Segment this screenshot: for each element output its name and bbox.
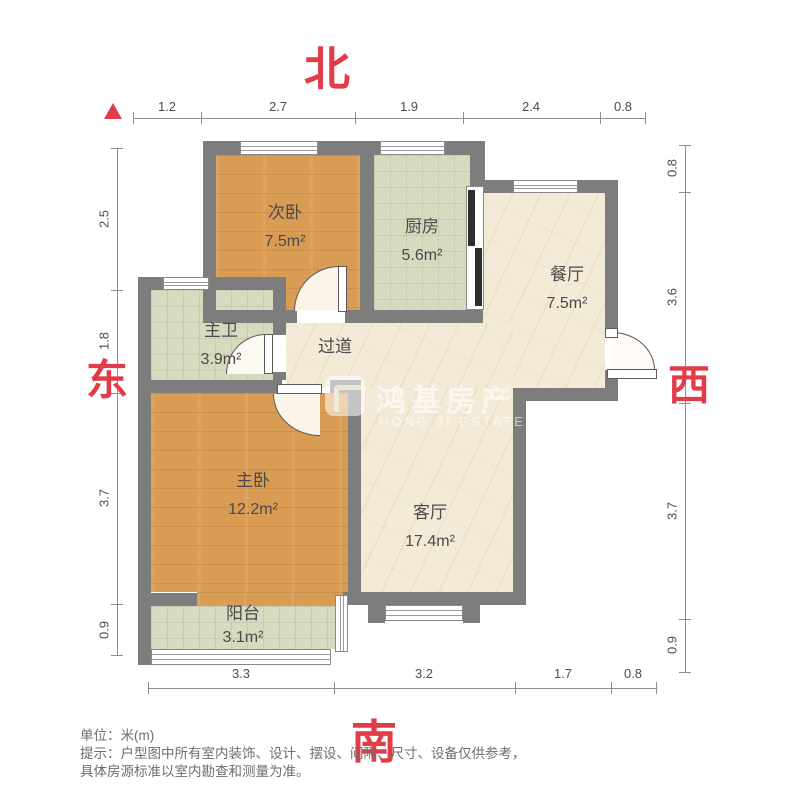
room-label-secondary-bedroom: 次卧 7.5m² — [265, 198, 306, 256]
dim-label-left: 2.5 — [97, 210, 112, 228]
dim-label-top: 1.2 — [158, 99, 176, 114]
room-area: 3.1m² — [223, 626, 264, 650]
room-label-master-bathroom: 主卫 3.9m² — [201, 316, 242, 374]
tick — [111, 148, 123, 149]
wall — [138, 380, 282, 393]
dim-label-left: 0.9 — [97, 621, 112, 639]
dining-room-window — [513, 180, 578, 193]
watermark-en: HONG JI ESTATE — [379, 414, 526, 429]
wall — [463, 592, 480, 623]
wall — [605, 180, 618, 333]
room-name: 餐厅 — [547, 260, 588, 289]
north-arrow-icon — [104, 103, 122, 119]
wall — [513, 388, 618, 401]
dim-label-top: 1.9 — [400, 99, 418, 114]
room-name: 客厅 — [405, 498, 455, 527]
tick — [355, 112, 356, 124]
dim-label-right: 0.9 — [665, 636, 680, 654]
tick — [600, 112, 601, 124]
compass-north: 北 — [304, 33, 350, 99]
footer-notes: 单位：米(m) 提示：户型图中所有室内装饰、设计、摆设、间隔、尺寸、设备仅供参考… — [80, 727, 526, 781]
dimension-line-bottom — [148, 688, 656, 689]
dim-label-bottom: 3.2 — [415, 666, 433, 681]
kitchen-window — [380, 141, 445, 155]
room-label-hallway: 过道 — [318, 332, 352, 361]
tick — [201, 112, 202, 124]
tick — [645, 112, 646, 124]
room-area: 5.6m² — [402, 241, 443, 270]
wall — [368, 592, 385, 623]
dim-label-right: 0.8 — [665, 159, 680, 177]
secondary-bedroom-window — [240, 141, 318, 155]
dim-label-bottom: 3.3 — [232, 666, 250, 681]
dim-label-top: 2.4 — [522, 99, 540, 114]
room-area: 12.2m² — [228, 495, 278, 524]
kitchen-sliding-door-panel — [468, 190, 475, 246]
tick — [334, 682, 335, 694]
secondary-bedroom-door-leaf — [338, 266, 347, 312]
room-area: 3.9m² — [201, 345, 242, 374]
entry-door-hinge — [605, 328, 618, 338]
tick — [656, 682, 657, 694]
bathroom-door-leaf — [264, 334, 273, 374]
disclaimer-line-2: 具体房源标准以室内勘查和测量为准。 — [80, 763, 526, 781]
balcony-bottom-window — [151, 649, 331, 665]
room-name: 厨房 — [402, 212, 443, 241]
tick — [111, 655, 123, 656]
tick — [111, 604, 123, 605]
room-name: 阳台 — [223, 602, 264, 626]
tick — [133, 112, 134, 124]
room-label-living-room: 客厅 17.4m² — [405, 498, 455, 556]
room-area: 7.5m² — [547, 289, 588, 318]
room-name: 过道 — [318, 332, 352, 361]
room-name: 主卫 — [201, 316, 242, 345]
bathroom-window — [163, 277, 209, 290]
tick — [148, 682, 149, 694]
room-label-kitchen: 厨房 5.6m² — [402, 212, 443, 270]
kitchen-sliding-door-panel — [475, 248, 482, 306]
master-bedroom-floor-ext — [197, 592, 348, 606]
compass-east: 东 — [86, 347, 128, 408]
floor-plan-canvas: 鸿基房产 HONG JI ESTATE 次卧 7.5m² 厨房 5.6m² 餐厅… — [0, 0, 800, 800]
wall — [273, 372, 286, 380]
tick — [611, 682, 612, 694]
dim-label-top: 0.8 — [614, 99, 632, 114]
wall — [360, 155, 374, 310]
tick — [679, 192, 691, 193]
wall — [138, 593, 197, 606]
entry-door-arc — [612, 332, 655, 370]
balcony-side-window — [335, 595, 348, 652]
entry-door-leaf — [607, 369, 657, 379]
dim-label-right: 3.6 — [665, 288, 680, 306]
tick — [463, 112, 464, 124]
compass-west: 西 — [668, 352, 710, 413]
room-area: 7.5m² — [265, 227, 306, 256]
tick — [679, 145, 691, 146]
tick — [111, 290, 123, 291]
dim-label-bottom: 1.7 — [554, 666, 572, 681]
tick — [515, 682, 516, 694]
unit-note: 单位：米(m) — [80, 727, 526, 745]
dimension-line-top — [133, 118, 646, 119]
dim-label-bottom: 0.8 — [624, 666, 642, 681]
room-label-balcony: 阳台 3.1m² — [223, 602, 264, 650]
room-label-master-bedroom: 主卧 12.2m² — [228, 466, 278, 524]
disclaimer-line-1: 提示：户型图中所有室内装饰、设计、摆设、间隔、尺寸、设备仅供参考， — [80, 745, 526, 763]
room-label-dining-room: 餐厅 7.5m² — [547, 260, 588, 318]
master-bedroom-door-leaf — [277, 384, 322, 394]
room-name: 次卧 — [265, 198, 306, 227]
room-area: 17.4m² — [405, 527, 455, 556]
wall — [138, 277, 151, 665]
living-room-bay-window — [385, 605, 463, 621]
dim-label-left: 3.7 — [97, 489, 112, 507]
tick — [679, 619, 691, 620]
wall — [345, 310, 483, 323]
wall — [273, 290, 286, 335]
room-name: 主卧 — [228, 466, 278, 495]
watermark-logo — [325, 376, 365, 416]
dim-label-top: 2.7 — [269, 99, 287, 114]
tick — [679, 672, 691, 673]
dim-label-right: 3.7 — [665, 502, 680, 520]
